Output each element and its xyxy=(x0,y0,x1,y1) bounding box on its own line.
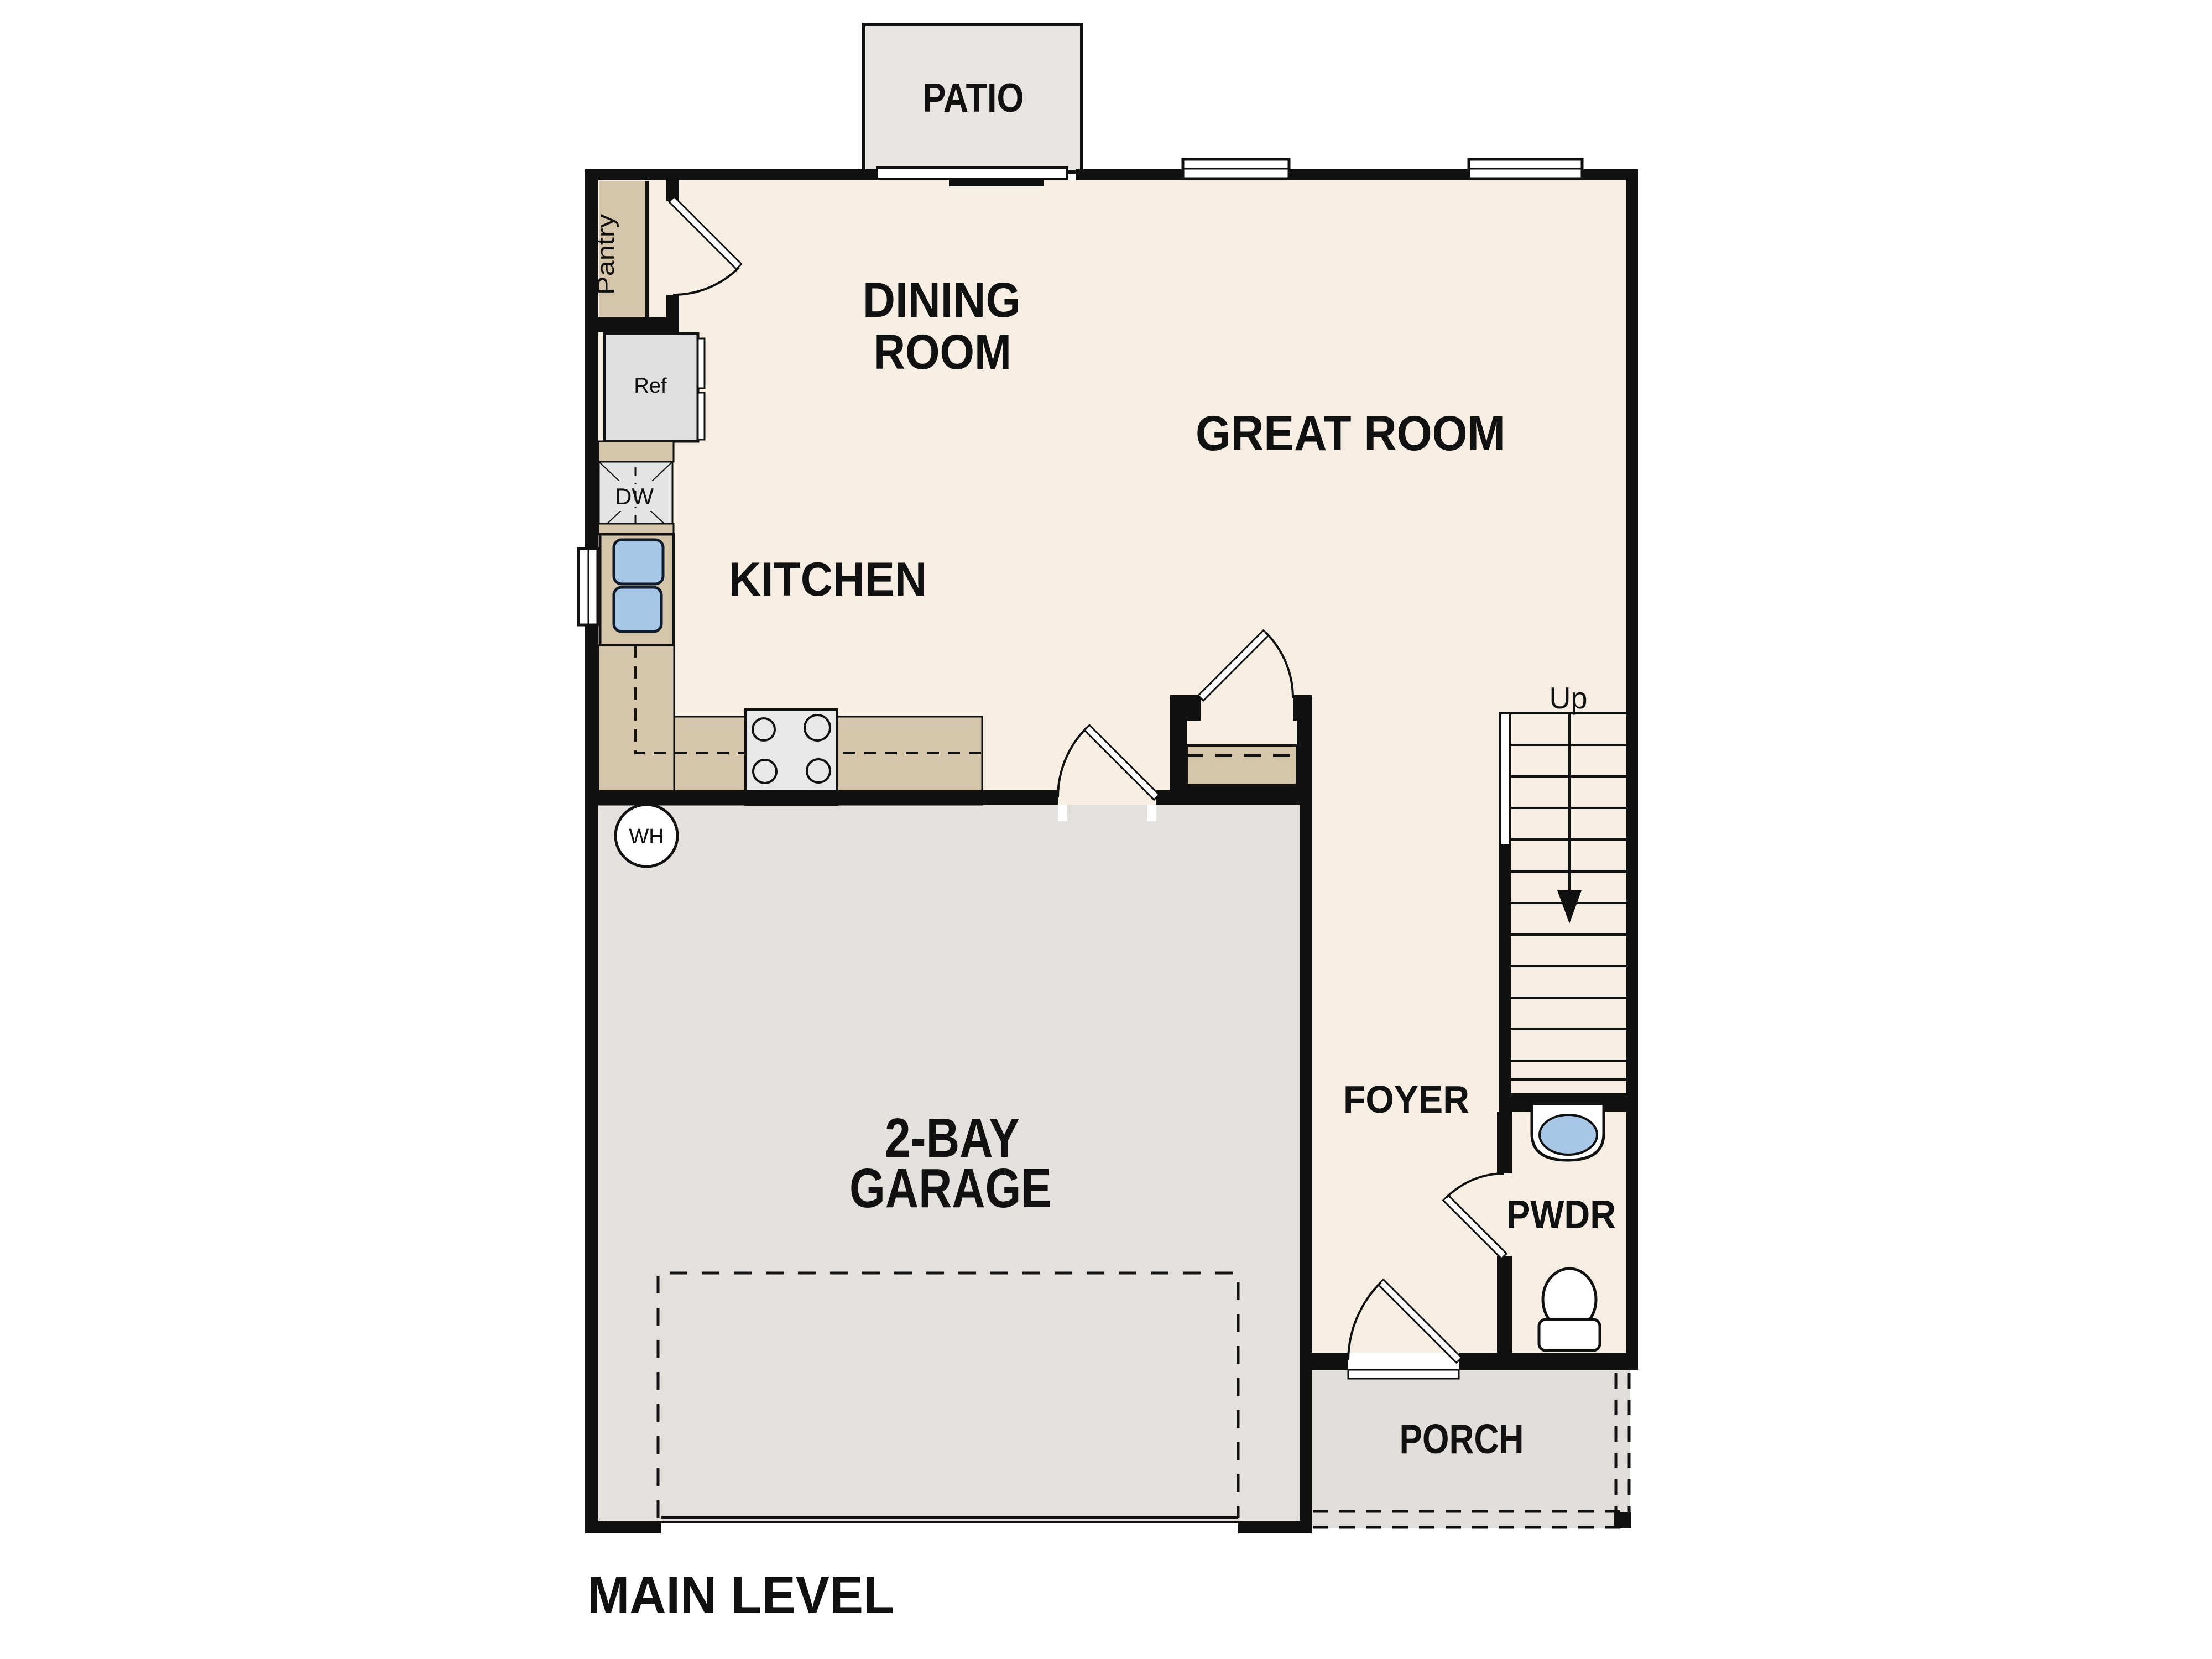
svg-text:DW: DW xyxy=(615,483,654,509)
svg-text:Ref: Ref xyxy=(634,374,667,398)
svg-text:GREAT ROOM: GREAT ROOM xyxy=(1196,405,1505,461)
svg-text:ROOM: ROOM xyxy=(873,324,1011,379)
svg-text:PATIO: PATIO xyxy=(923,76,1024,121)
svg-text:Up: Up xyxy=(1550,681,1588,715)
svg-text:MAIN LEVEL: MAIN LEVEL xyxy=(587,1566,894,1625)
svg-text:WH: WH xyxy=(629,825,664,848)
svg-text:PWDR: PWDR xyxy=(1506,1193,1616,1237)
svg-text:FOYER: FOYER xyxy=(1343,1078,1469,1121)
svg-text:GARAGE: GARAGE xyxy=(849,1157,1052,1219)
svg-text:DINING: DINING xyxy=(863,272,1021,327)
svg-text:PORCH: PORCH xyxy=(1400,1416,1524,1462)
svg-text:KITCHEN: KITCHEN xyxy=(729,553,927,606)
